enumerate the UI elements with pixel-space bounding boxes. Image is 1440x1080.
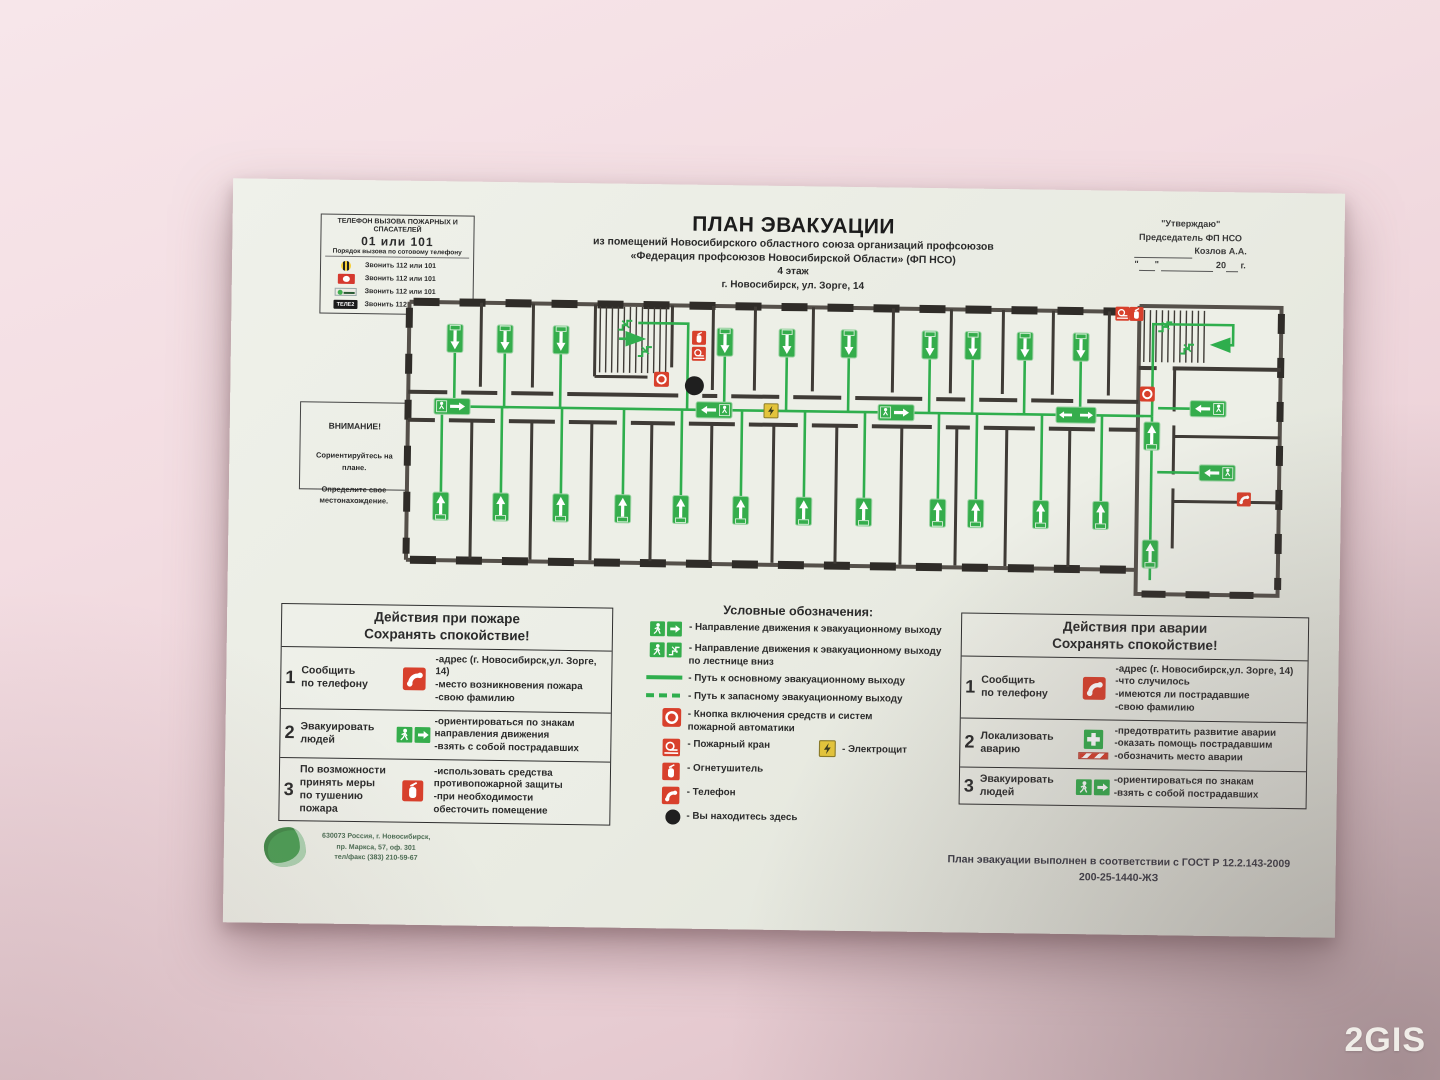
- attention-box: ВНИМАНИЕ! Сориентируйтесь на плане. Опре…: [299, 401, 410, 491]
- wing-bottom-windows: [1142, 594, 1272, 596]
- 2gis-watermark: 2GIS: [1345, 1021, 1426, 1060]
- extinguisher-icon: [401, 779, 425, 803]
- phone-icon: [1237, 492, 1251, 506]
- maker-logo-icon: [264, 827, 307, 868]
- legend-item: - Пожарный кран - Электрощит: [635, 737, 957, 761]
- legend-item: - Путь к основному эвакуационному выходу: [636, 671, 958, 689]
- phone-call-text: Звонить 112 или 101: [365, 262, 436, 270]
- phones-title: ТЕЛЕФОН ВЫЗОВА ПОЖАРНЫХ И СПАСАТЕЛЕЙ: [325, 218, 469, 236]
- exit-man-arrow-icon: [649, 620, 683, 637]
- extinguisher-icon: [1129, 307, 1143, 321]
- you-are-here-icon: [665, 810, 680, 825]
- attention-text: Сориентируйтесь на плане. Определите сво…: [304, 450, 405, 508]
- fire-button-icon: [662, 707, 682, 727]
- exit-man-stairs-icon: [649, 641, 683, 658]
- legend-item: - Направление движения к эвакуационному …: [636, 641, 958, 672]
- fire-button-icon: [654, 372, 669, 387]
- legend: Условные обозначения: - Направление движ…: [634, 602, 959, 833]
- approval-date-line: "" 20 г.: [1090, 257, 1290, 273]
- phones-subtitle: Порядок вызова по сотовому телефону: [325, 248, 469, 259]
- hazard-stripe-icon: [1078, 752, 1108, 759]
- approval-name: Козлов А.А.: [1194, 246, 1246, 257]
- table-row: 3 По возможности принять меры по тушению…: [279, 758, 610, 825]
- beeline-logo-icon: [341, 260, 351, 270]
- fire-actions-header: Действия при пожаре Сохранять спокойстви…: [282, 604, 613, 651]
- legend-electro-entry: - Электрощит: [818, 740, 907, 759]
- first-aid-icon: [1082, 728, 1104, 750]
- legend-item: - Путь к запасному эвакуационному выходу: [636, 689, 958, 707]
- approval-block: "Утверждаю" Председатель ФП НСО Козлов А…: [1090, 216, 1291, 273]
- legend-item: - Кнопка включения средств и систем пожа…: [636, 707, 958, 738]
- accident-actions-table: Действия при аварии Сохранять спокойстви…: [959, 612, 1310, 809]
- maker-address: 630073 Россия, г. Новосибирск, пр. Маркс…: [322, 832, 431, 865]
- table-row: 1 Сообщить по телефону -адрес (г. Новоси…: [281, 647, 612, 714]
- mts-logo-icon: [337, 273, 354, 283]
- solid-route-line-icon: [646, 676, 682, 680]
- electro-panel-icon: [818, 740, 836, 758]
- accident-actions-header: Действия при аварии Сохранять спокойстви…: [962, 613, 1309, 661]
- legend-item: - Направление движения к эвакуационному …: [637, 620, 959, 641]
- fire-hose-icon: [1115, 307, 1129, 321]
- dashed-route-line-icon: [646, 693, 682, 697]
- maker-logo-block: 630073 Россия, г. Новосибирск, пр. Маркс…: [264, 827, 431, 869]
- table-row: 3 Эвакуировать людей -ориентироваться по…: [960, 767, 1306, 808]
- floor-plan: [399, 285, 1293, 611]
- approval-year-suffix: г.: [1240, 260, 1245, 270]
- legend-item: - Телефон: [635, 785, 957, 809]
- title-block: ПЛАН ЭВАКУАЦИИ из помещений Новосибирско…: [528, 210, 1059, 296]
- attention-title: ВНИМАНИЕ!: [305, 420, 405, 434]
- gost-note: План эвакуации выполнен в соответствии с…: [913, 852, 1323, 889]
- fire-actions-table: Действия при пожаре Сохранять спокойстви…: [278, 603, 613, 826]
- fire-hose-icon: [692, 347, 706, 361]
- fire-button-icon: [1140, 386, 1155, 401]
- phone-icon: [661, 786, 681, 806]
- extinguisher-icon: [661, 762, 681, 782]
- exit-sign-icon: [395, 725, 431, 744]
- exit-sign-icon: [1075, 778, 1111, 797]
- megafon-logo-icon: [335, 287, 357, 295]
- evacuation-plan-board: ТЕЛЕФОН ВЫЗОВА ПОЖАРНЫХ И СПАСАТЕЛЕЙ 01 …: [223, 178, 1345, 937]
- phone-icon: [401, 666, 427, 692]
- extinguisher-icon: [692, 331, 706, 345]
- legend-item: - Вы находитесь здесь: [634, 809, 956, 828]
- table-row: 2 Локализовать аварию -предотвратить раз…: [960, 718, 1307, 772]
- electro-panel-icon: [764, 404, 778, 418]
- table-row: 2 Эвакуировать людей -ориентироваться по…: [280, 709, 611, 763]
- table-row: 1 Сообщить по телефону -адрес (г. Новоси…: [961, 656, 1308, 723]
- fire-hose-icon: [661, 738, 681, 758]
- tele2-logo-icon: ТЕЛЕ2: [334, 300, 358, 309]
- phone-icon: [1081, 675, 1107, 701]
- legend-item: - Огнетушитель: [635, 761, 957, 785]
- phone-call-text: Звонить 112 или 101: [365, 275, 436, 283]
- approval-year: 20: [1216, 260, 1226, 270]
